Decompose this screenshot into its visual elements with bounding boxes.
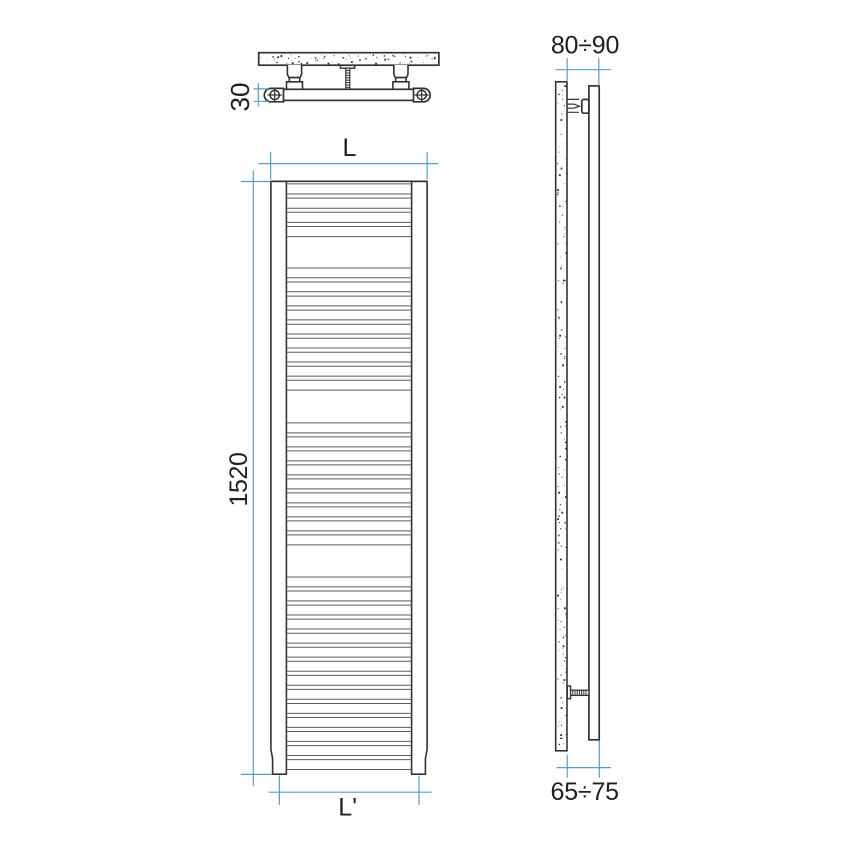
svg-text:65÷75: 65÷75	[551, 778, 619, 806]
svg-text:1520: 1520	[225, 452, 253, 506]
svg-text:L': L'	[338, 794, 357, 822]
svg-text:30: 30	[225, 83, 255, 112]
svg-text:L: L	[343, 134, 357, 162]
svg-text:80÷90: 80÷90	[551, 32, 619, 60]
